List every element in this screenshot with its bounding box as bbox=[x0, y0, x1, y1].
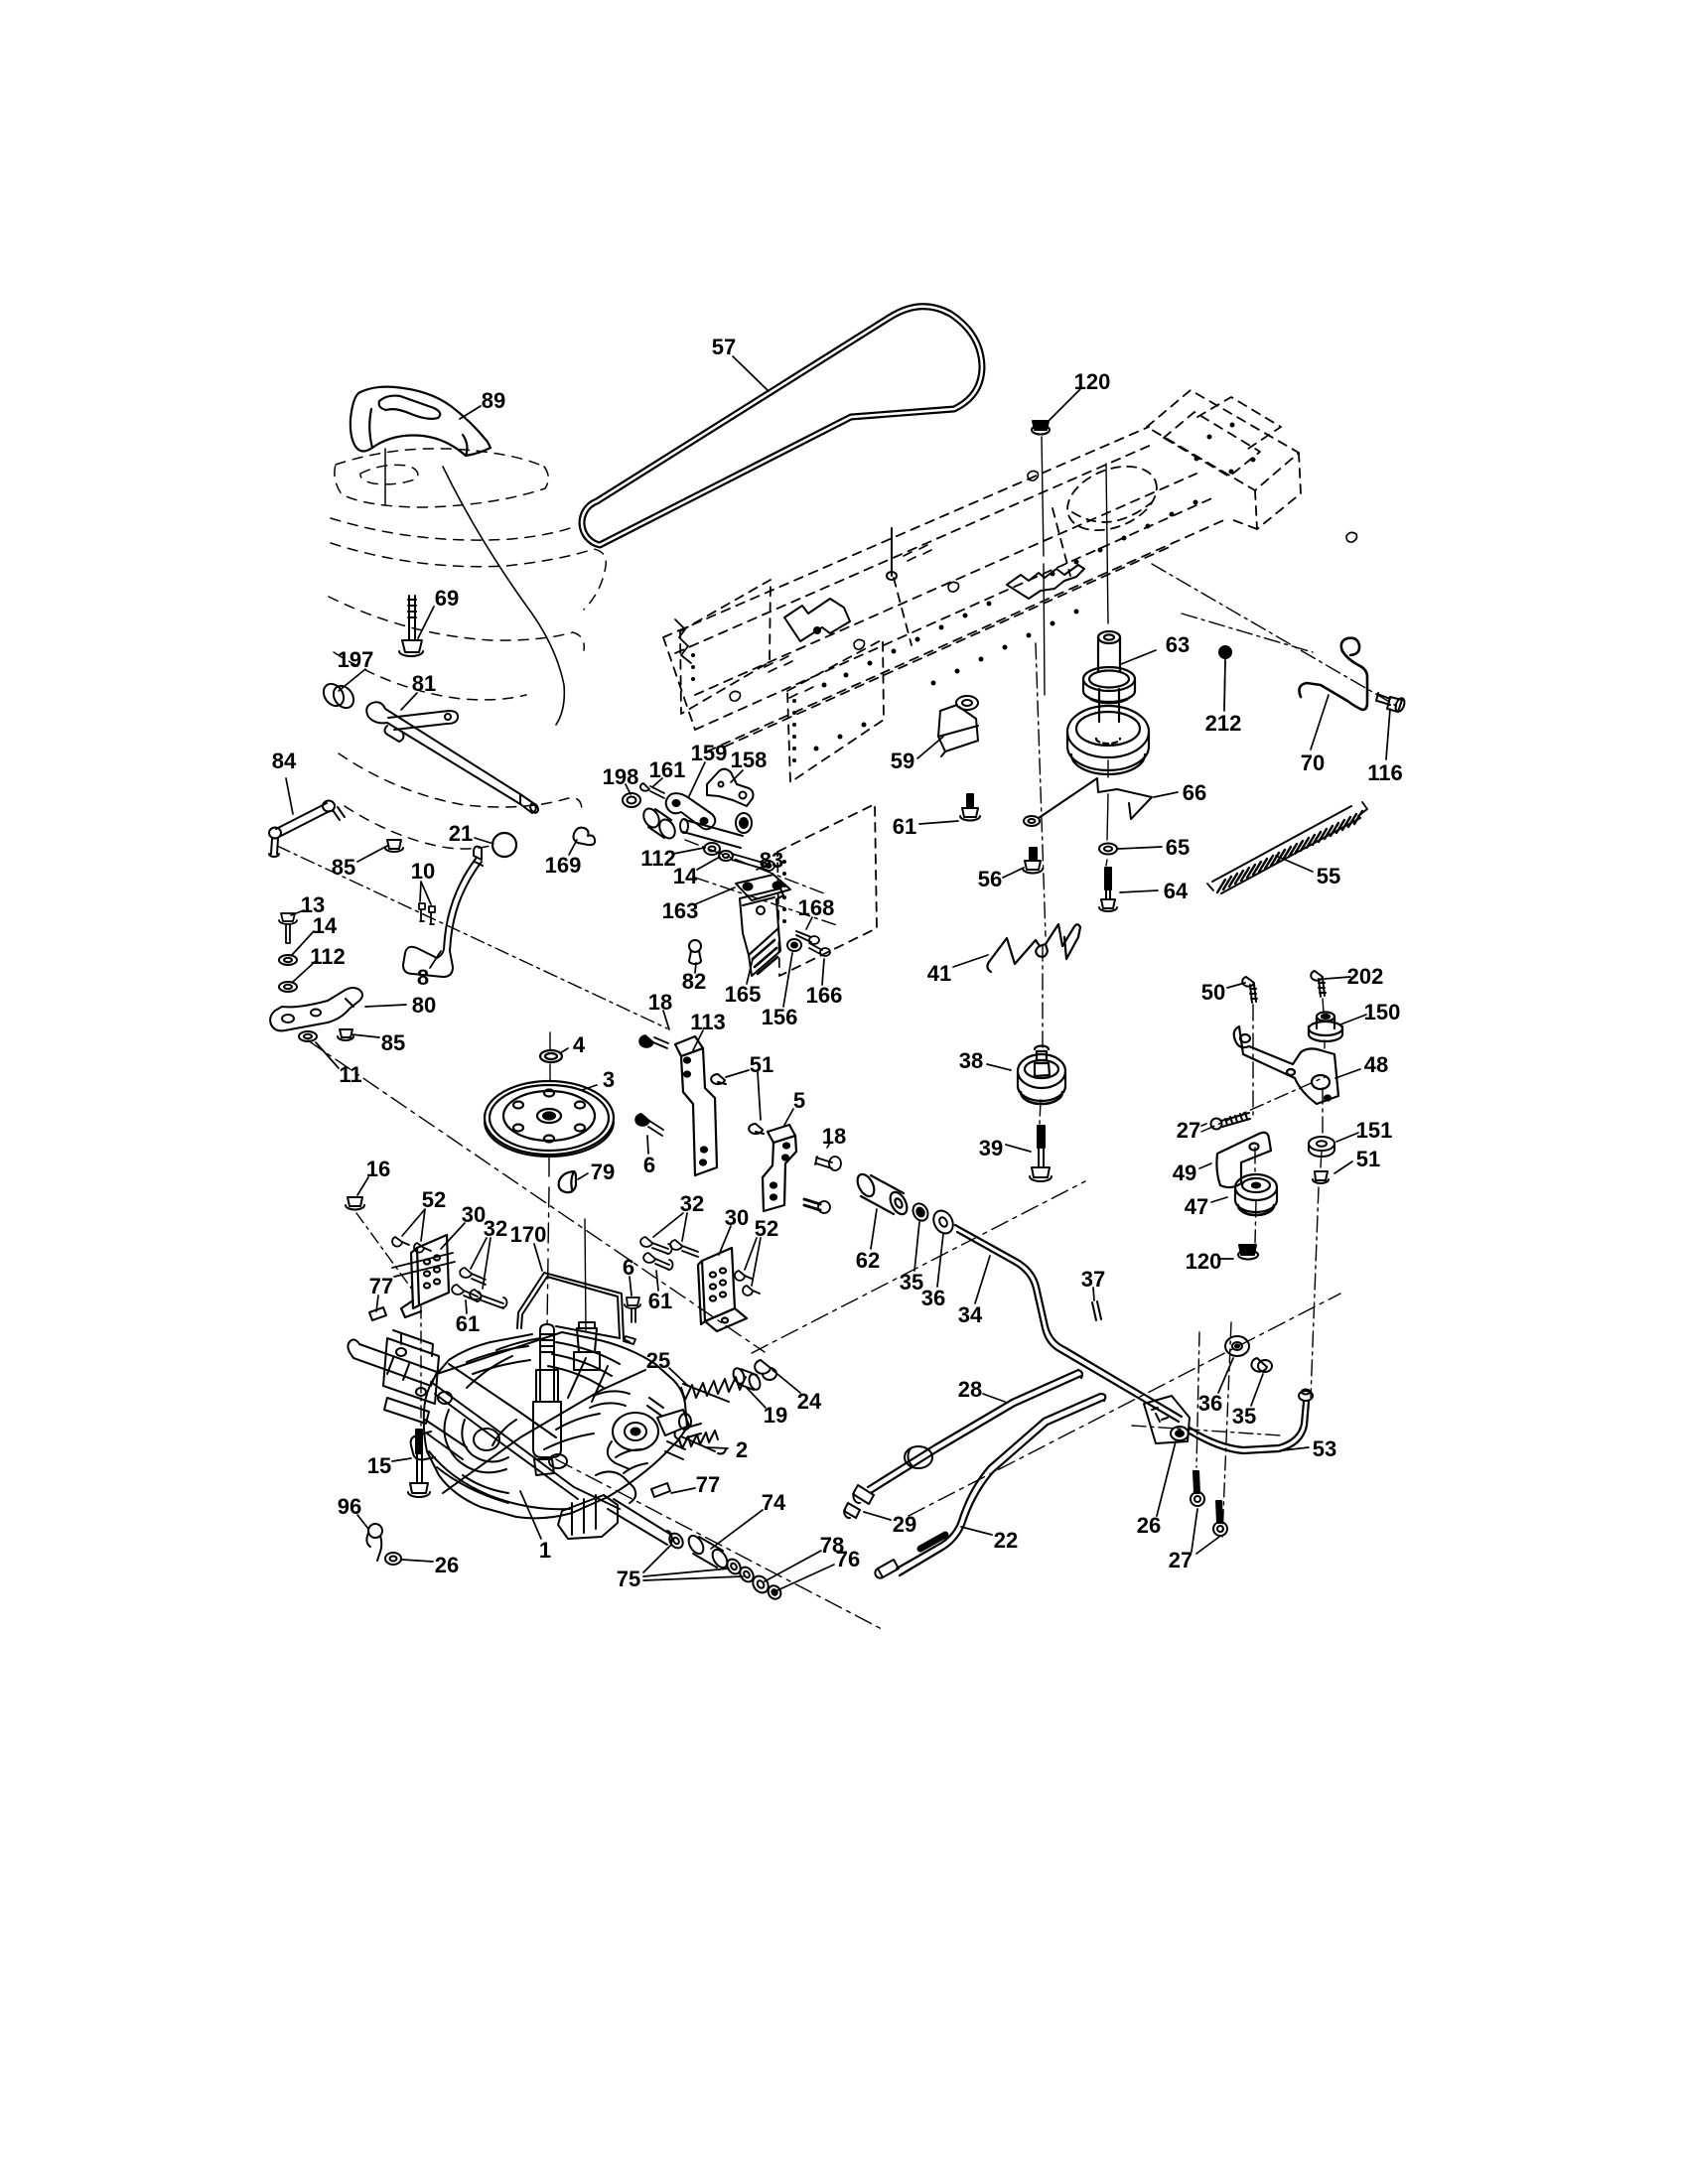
svg-text:158: 158 bbox=[731, 748, 768, 772]
svg-text:77: 77 bbox=[696, 1472, 720, 1497]
svg-text:2: 2 bbox=[736, 1437, 748, 1462]
svg-text:151: 151 bbox=[1356, 1118, 1393, 1143]
svg-text:112: 112 bbox=[310, 944, 346, 969]
svg-text:28: 28 bbox=[958, 1377, 982, 1402]
svg-text:48: 48 bbox=[1364, 1052, 1388, 1077]
svg-text:21: 21 bbox=[449, 821, 473, 846]
svg-text:82: 82 bbox=[682, 969, 706, 994]
svg-text:163: 163 bbox=[662, 898, 699, 923]
svg-text:19: 19 bbox=[764, 1403, 787, 1428]
svg-text:112: 112 bbox=[640, 846, 676, 871]
svg-text:3: 3 bbox=[603, 1067, 615, 1092]
svg-text:56: 56 bbox=[978, 867, 1002, 891]
svg-text:84: 84 bbox=[272, 749, 297, 773]
svg-text:18: 18 bbox=[648, 990, 672, 1015]
svg-text:47: 47 bbox=[1185, 1194, 1208, 1219]
svg-text:120: 120 bbox=[1186, 1249, 1222, 1274]
svg-text:53: 53 bbox=[1313, 1436, 1336, 1461]
svg-text:22: 22 bbox=[994, 1528, 1018, 1553]
svg-text:35: 35 bbox=[1232, 1404, 1256, 1429]
svg-text:85: 85 bbox=[381, 1030, 405, 1055]
svg-text:38: 38 bbox=[959, 1048, 983, 1073]
svg-text:37: 37 bbox=[1081, 1267, 1105, 1292]
svg-text:81: 81 bbox=[412, 671, 436, 696]
svg-text:96: 96 bbox=[338, 1494, 361, 1519]
svg-text:6: 6 bbox=[643, 1153, 655, 1177]
svg-text:34: 34 bbox=[958, 1302, 983, 1327]
svg-text:161: 161 bbox=[649, 757, 686, 782]
svg-text:89: 89 bbox=[482, 388, 505, 413]
svg-text:169: 169 bbox=[545, 853, 582, 878]
svg-text:35: 35 bbox=[900, 1270, 923, 1295]
svg-text:24: 24 bbox=[797, 1389, 822, 1414]
svg-text:10: 10 bbox=[411, 859, 435, 884]
svg-text:52: 52 bbox=[422, 1187, 446, 1212]
svg-text:63: 63 bbox=[1166, 632, 1190, 657]
svg-text:14: 14 bbox=[673, 864, 698, 888]
svg-text:27: 27 bbox=[1169, 1548, 1193, 1572]
svg-text:4: 4 bbox=[573, 1032, 586, 1057]
svg-text:212: 212 bbox=[1205, 711, 1242, 736]
svg-text:25: 25 bbox=[646, 1348, 670, 1373]
svg-text:41: 41 bbox=[927, 961, 951, 986]
svg-text:27: 27 bbox=[1177, 1118, 1200, 1143]
svg-text:70: 70 bbox=[1301, 751, 1325, 775]
svg-text:165: 165 bbox=[725, 982, 762, 1007]
svg-text:49: 49 bbox=[1173, 1160, 1196, 1185]
svg-text:50: 50 bbox=[1201, 980, 1225, 1005]
svg-text:75: 75 bbox=[617, 1567, 640, 1591]
svg-text:30: 30 bbox=[725, 1205, 749, 1230]
svg-text:51: 51 bbox=[1356, 1147, 1380, 1171]
svg-text:168: 168 bbox=[798, 895, 835, 920]
svg-text:36: 36 bbox=[1198, 1391, 1222, 1416]
svg-text:15: 15 bbox=[367, 1453, 391, 1478]
svg-text:1: 1 bbox=[539, 1538, 551, 1563]
svg-text:6: 6 bbox=[623, 1255, 634, 1280]
svg-text:85: 85 bbox=[332, 855, 355, 880]
svg-text:80: 80 bbox=[412, 993, 436, 1018]
svg-text:66: 66 bbox=[1183, 780, 1206, 805]
svg-text:5: 5 bbox=[793, 1088, 805, 1113]
svg-text:30: 30 bbox=[462, 1202, 486, 1227]
svg-text:113: 113 bbox=[690, 1010, 726, 1034]
svg-text:65: 65 bbox=[1166, 835, 1190, 860]
svg-text:39: 39 bbox=[979, 1136, 1003, 1160]
svg-text:14: 14 bbox=[313, 913, 338, 938]
svg-text:69: 69 bbox=[435, 586, 459, 611]
svg-text:29: 29 bbox=[893, 1512, 916, 1537]
svg-text:32: 32 bbox=[484, 1216, 507, 1241]
svg-text:18: 18 bbox=[822, 1124, 846, 1149]
svg-text:79: 79 bbox=[591, 1160, 615, 1184]
svg-text:36: 36 bbox=[921, 1286, 945, 1310]
svg-text:61: 61 bbox=[456, 1311, 480, 1336]
svg-text:61: 61 bbox=[893, 814, 916, 839]
svg-text:61: 61 bbox=[648, 1289, 672, 1313]
svg-text:77: 77 bbox=[369, 1274, 393, 1298]
svg-text:156: 156 bbox=[762, 1005, 798, 1029]
svg-text:170: 170 bbox=[510, 1222, 547, 1247]
svg-text:26: 26 bbox=[435, 1553, 459, 1577]
svg-text:52: 52 bbox=[755, 1216, 778, 1241]
svg-text:62: 62 bbox=[856, 1248, 880, 1273]
svg-text:116: 116 bbox=[1367, 760, 1403, 785]
svg-text:59: 59 bbox=[891, 749, 914, 773]
svg-text:16: 16 bbox=[366, 1157, 390, 1181]
svg-text:57: 57 bbox=[712, 335, 736, 359]
svg-text:159: 159 bbox=[691, 741, 728, 765]
svg-text:150: 150 bbox=[1364, 1000, 1401, 1024]
svg-text:83: 83 bbox=[760, 848, 783, 873]
svg-text:55: 55 bbox=[1317, 864, 1340, 888]
svg-text:32: 32 bbox=[680, 1191, 704, 1216]
svg-text:74: 74 bbox=[762, 1490, 786, 1515]
svg-text:202: 202 bbox=[1347, 964, 1384, 989]
svg-text:76: 76 bbox=[836, 1547, 860, 1571]
svg-text:26: 26 bbox=[1137, 1513, 1161, 1538]
svg-text:51: 51 bbox=[750, 1052, 773, 1077]
svg-text:11: 11 bbox=[339, 1062, 361, 1087]
svg-text:8: 8 bbox=[417, 965, 429, 990]
svg-text:120: 120 bbox=[1074, 369, 1111, 394]
svg-text:197: 197 bbox=[338, 647, 374, 672]
svg-text:166: 166 bbox=[806, 983, 843, 1008]
svg-text:198: 198 bbox=[603, 764, 639, 789]
svg-text:64: 64 bbox=[1164, 879, 1189, 903]
